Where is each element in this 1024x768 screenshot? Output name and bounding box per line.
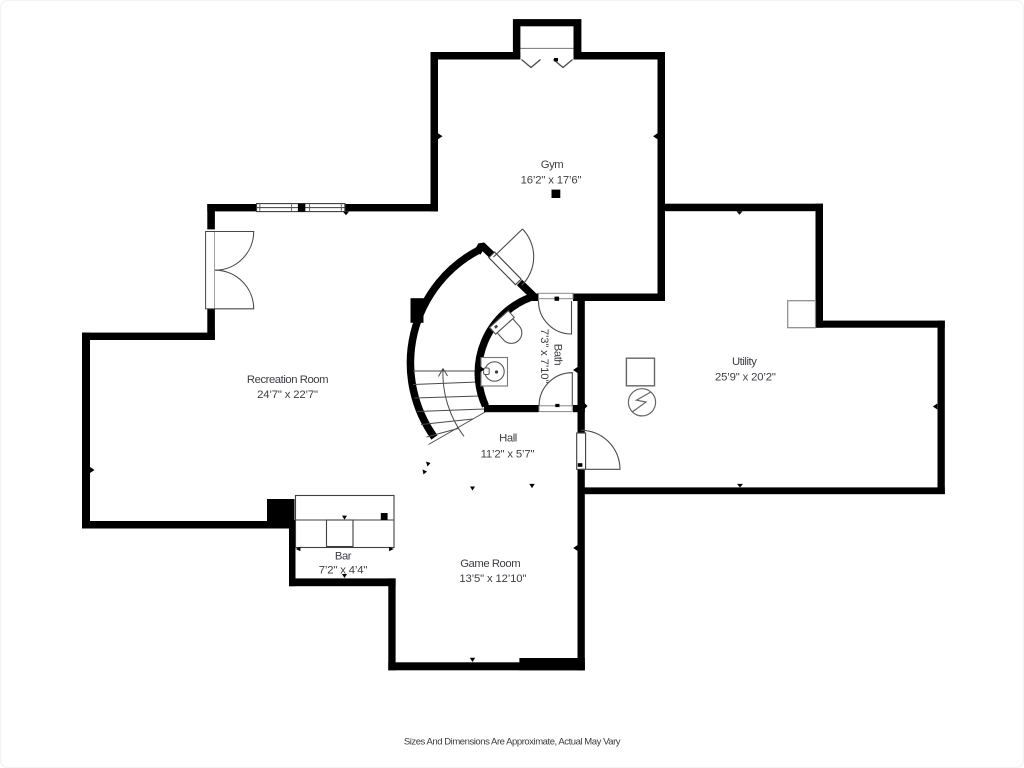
svg-text:Gym: Gym [541,159,564,171]
svg-text:Hall: Hall [499,432,517,444]
svg-text:7’2" x 4’4": 7’2" x 4’4" [319,565,368,577]
svg-text:Utility: Utility [732,356,757,368]
svg-text:Recreation Room: Recreation Room [247,374,328,386]
svg-text:25’9" x 20’2": 25’9" x 20’2" [715,371,776,383]
svg-text:11’2" x 5’7": 11’2" x 5’7" [481,448,535,460]
svg-text:24’7" x 22’7": 24’7" x 22’7" [257,389,318,401]
svg-text:13’5" x 12’10": 13’5" x 12’10" [459,573,526,585]
svg-text:Bath: Bath [552,344,564,366]
svg-text:Sizes And Dimensions Are Appro: Sizes And Dimensions Are Approximate, Ac… [404,737,621,748]
svg-text:Bar: Bar [335,551,352,563]
svg-text:16’2" x 17’6": 16’2" x 17’6" [521,175,582,187]
svg-text:7’3" x 7’10": 7’3" x 7’10" [538,329,550,384]
svg-text:Game Room: Game Room [460,558,520,570]
